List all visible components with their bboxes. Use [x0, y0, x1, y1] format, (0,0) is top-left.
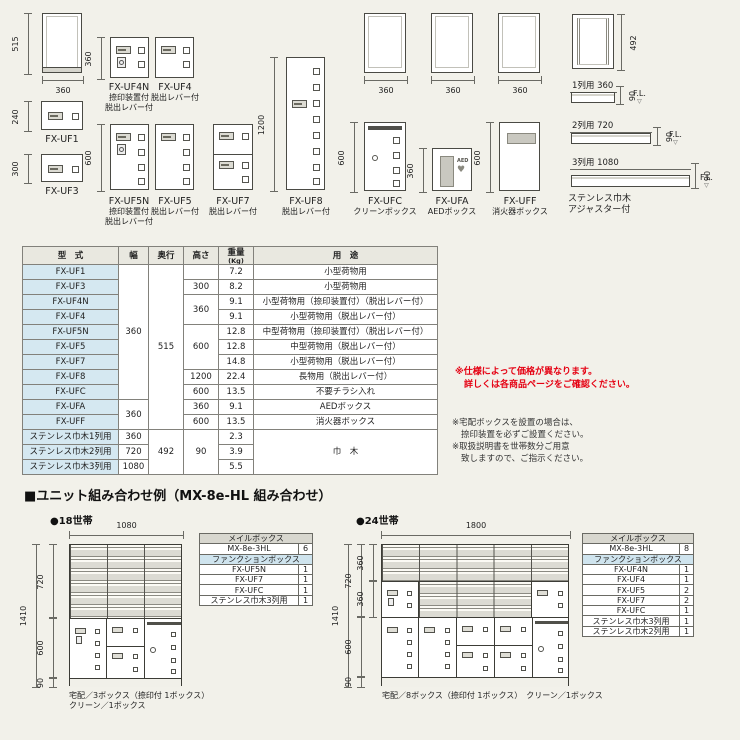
- skirting-row3-drawing: [571, 175, 690, 187]
- label-fx-uf3: FX-UF3: [30, 186, 94, 197]
- mailbox-grid: [382, 545, 568, 581]
- dim-90-right: 90: [357, 676, 365, 688]
- nameplate-icon: [424, 627, 435, 633]
- box-fx-uf7: [107, 619, 145, 678]
- lock-icon: [95, 653, 100, 658]
- nameplate-icon: [537, 590, 548, 596]
- dim-600-left: 600: [49, 617, 57, 679]
- lock-icon: [138, 149, 145, 156]
- table-row: FX-UFA3603609.1AEDボックス: [23, 400, 438, 415]
- lock-icon: [242, 162, 249, 169]
- floor-line-mark: F.L.▽: [669, 131, 682, 146]
- install-note: ※宅配ボックスを設置の場合は、 捺印装置を必ずご設置ください。 ※取扱説明書を世…: [452, 417, 589, 465]
- nameplate-icon: [292, 100, 307, 108]
- table-row: メイルボックス: [200, 534, 313, 544]
- table-row: FX-UF714.8小型荷物用（脱出レバー付）: [23, 355, 438, 370]
- nameplate-icon: [219, 132, 234, 140]
- spec-table: 型 式 幅 奥行 高さ 重量(Kg) 用 途 FX-UF13605157.2小型…: [22, 246, 438, 475]
- lock-icon: [171, 645, 176, 650]
- lock-icon: [183, 149, 190, 156]
- lock-icon: [407, 591, 412, 596]
- product-fx-uf3-drawing: [41, 154, 83, 182]
- lock-icon: [171, 658, 176, 663]
- col-height: 高さ: [184, 247, 219, 265]
- lock-icon: [313, 100, 320, 107]
- lock-icon: [72, 166, 79, 173]
- nameplate-icon: [116, 133, 131, 141]
- dim-240: 240: [24, 101, 32, 132]
- skirting-frame-drawing: [572, 14, 614, 69]
- lock-icon: [313, 116, 320, 123]
- product-fx-uf7-drawing: [213, 124, 253, 190]
- lock-icon: [171, 669, 176, 674]
- dim-600-ufc: 600: [350, 122, 358, 193]
- table-row: ファンクションボックス: [583, 554, 694, 564]
- skirting-row2-label: 2列用 720: [570, 119, 652, 133]
- skirting-base: [382, 677, 568, 687]
- table-row: FX-UF13605157.2小型荷物用: [23, 265, 438, 280]
- skirting-row1-label: 1列用 360: [570, 79, 617, 93]
- stamp-device-icon: [117, 57, 126, 68]
- stamp-device-icon: [76, 636, 82, 644]
- nameplate-icon: [462, 626, 473, 632]
- lock-icon: [313, 68, 320, 75]
- dim-360b-right: 360: [369, 580, 377, 618]
- table-row: FX-UF4N3609.1小型荷物用（捺印装置付）（脱出レバー付）: [23, 295, 438, 310]
- nameplate-icon: [112, 627, 123, 633]
- box-fx-uf5n: [70, 619, 107, 678]
- lock-icon: [95, 665, 100, 670]
- table-row: ステンレス巾木2列用1: [583, 626, 694, 636]
- lock-icon: [445, 652, 450, 657]
- dim-600-uff: 600: [486, 122, 494, 193]
- dim-90-row3: 90: [691, 163, 699, 189]
- table-row: FX-UF49.1小型荷物用（脱出レバー付）: [23, 310, 438, 325]
- lock-icon: [138, 61, 145, 68]
- lock-icon: [407, 664, 412, 669]
- lock-icon: [558, 644, 563, 649]
- compartment-divider: [495, 645, 532, 646]
- nameplate-icon: [112, 653, 123, 659]
- table-row: FX-UF52: [583, 585, 694, 595]
- table-row: ステンレス巾木3列用1: [200, 595, 313, 605]
- product-fx-ufa-drawing: AED ♥: [432, 148, 472, 191]
- product-fx-uf5-drawing: [155, 124, 194, 190]
- spec-header-row: 型 式 幅 奥行 高さ 重量(Kg) 用 途: [23, 247, 438, 265]
- box-fx-uf5: [382, 618, 419, 677]
- product-fx-uf5n-drawing: [110, 124, 149, 190]
- lock-icon: [242, 133, 249, 140]
- label-fx-uf7: FX-UF7脱出レバー付: [204, 196, 262, 217]
- function-box-row: [382, 617, 568, 677]
- dim-492: 492: [617, 14, 625, 71]
- lock-icon: [72, 113, 79, 120]
- lock-icon: [138, 134, 145, 141]
- nameplate-icon: [161, 133, 176, 141]
- lock-icon: [393, 167, 400, 174]
- lock-icon: [393, 152, 400, 159]
- lock-icon: [95, 641, 100, 646]
- table-row: FX-UF71: [200, 575, 313, 585]
- col-use: 用 途: [254, 247, 438, 265]
- box-fx-uf5: [419, 618, 457, 677]
- keyhole-icon: [538, 646, 544, 652]
- dim-1800: 1800: [381, 531, 571, 539]
- col-depth: 奥行: [149, 247, 184, 265]
- floor-line-mark: F.L.▽: [700, 174, 713, 189]
- mailbox-grid: [70, 545, 181, 618]
- table-row: FX-UF72: [583, 595, 694, 605]
- dim-600-uf5: 600: [97, 124, 105, 192]
- product-fx-uf4-drawing: [155, 37, 194, 78]
- skirting-row3-label: 3列用 1080: [570, 156, 691, 170]
- dim-90-left: 90: [49, 677, 57, 688]
- lock-icon: [521, 627, 526, 632]
- lock-icon: [133, 654, 138, 659]
- box-fx-uf7: [457, 618, 495, 677]
- flyer-slot-icon: [535, 621, 568, 624]
- label-fx-ufa: FX-UFAAEDボックス: [422, 196, 482, 217]
- col-weight: 重量(Kg): [219, 247, 254, 265]
- dim-360-frame3: 360: [498, 76, 542, 84]
- product-fx-uf4n-drawing: [110, 37, 149, 78]
- aed-door-window: [440, 156, 454, 187]
- box-fx-uf4: [532, 582, 570, 617]
- table-row: ステンレス巾木3列用1: [583, 616, 694, 626]
- lock-icon: [138, 164, 145, 171]
- table-row: FX-UF5N1: [200, 564, 313, 574]
- lock-icon: [138, 47, 145, 54]
- lock-icon: [183, 164, 190, 171]
- table-row: FX-UF33008.2小型荷物用: [23, 280, 438, 295]
- label-fx-ufc: FX-UFCクリーンボックス: [352, 196, 418, 217]
- combo-diagram-24: [381, 544, 569, 686]
- lock-icon: [483, 627, 488, 632]
- label-fx-uff: FX-UFF消火器ボックス: [487, 196, 553, 217]
- compartment-divider: [457, 645, 494, 646]
- combo-18-caption: 宅配／3ボックス（捺印付 1ボックス） クリーン／1ボックス: [69, 691, 209, 711]
- table-row: MX-8e-3HL8: [583, 544, 694, 554]
- label-fx-uf5: FX-UF5脱出レバー付: [146, 196, 204, 217]
- box-fx-ufc: [145, 619, 183, 678]
- lock-icon: [558, 591, 563, 596]
- dim-1200: 1200: [270, 57, 278, 192]
- nameplate-icon: [48, 112, 63, 120]
- nameplate-icon: [500, 652, 511, 658]
- table-row: MX-8e-3HL6: [200, 544, 313, 554]
- keyhole-icon: [150, 647, 156, 653]
- skirting-row2-drawing: [571, 133, 651, 144]
- nameplate-icon: [387, 590, 398, 596]
- lock-icon: [183, 47, 190, 54]
- box-fx-ufc: [533, 618, 570, 677]
- dim-300: 300: [24, 154, 32, 184]
- col-width: 幅: [119, 247, 149, 265]
- table-row: FX-UF4N1: [583, 564, 694, 574]
- lock-icon: [242, 176, 249, 183]
- lock-icon: [407, 652, 412, 657]
- nameplate-icon: [219, 161, 234, 169]
- lock-icon: [171, 632, 176, 637]
- lock-icon: [313, 148, 320, 155]
- dim-1410-left: 1410: [32, 544, 40, 688]
- table-row: FX-UFC1: [200, 585, 313, 595]
- dim-600-right: 600: [357, 616, 365, 678]
- table-row: ファンクションボックス: [200, 554, 313, 564]
- table-row: FX-UF512.8中型荷物用（脱出レバー付）: [23, 340, 438, 355]
- lock-icon: [407, 603, 412, 608]
- floor-line-mark: F.L.▽: [633, 90, 646, 105]
- table-row: FX-UF41: [583, 575, 694, 585]
- dim-360-ufa: 360: [419, 148, 427, 193]
- lock-icon: [407, 640, 412, 645]
- price-note: ※仕様によって価格が異なります。 詳しくは各商品ページをご確認ください。: [455, 366, 635, 392]
- open-frame-drawing: [364, 13, 406, 73]
- nameplate-icon: [387, 627, 398, 633]
- mailbox-grid: [419, 582, 532, 617]
- box-fx-uf7: [495, 618, 533, 677]
- lock-icon: [95, 629, 100, 634]
- dim-360-cabinet: 360: [42, 76, 84, 84]
- mixed-row: [382, 581, 568, 617]
- table-row: ステンレス巾木1列用360492902.3巾 木: [23, 430, 438, 445]
- open-cabinet-drawing: [42, 13, 82, 73]
- dim-515: 515: [24, 13, 32, 75]
- lock-icon: [445, 628, 450, 633]
- table-row: FX-UF8120022.4長物用（脱出レバー付）: [23, 370, 438, 385]
- lock-icon: [558, 603, 563, 608]
- lock-icon: [445, 664, 450, 669]
- lock-icon: [407, 628, 412, 633]
- dim-1080: 1080: [69, 531, 184, 539]
- compartment-divider: [213, 154, 253, 155]
- lock-icon: [133, 667, 138, 672]
- combo-24-caption: 宅配／8ボックス（捺印付 1ボックス） クリーン／1ボックス: [382, 691, 603, 701]
- lock-icon: [313, 164, 320, 171]
- nameplate-icon: [48, 165, 63, 173]
- compartment-divider: [107, 646, 144, 647]
- extinguisher-window: [507, 133, 536, 144]
- dim-360-frame1: 360: [364, 76, 408, 84]
- col-model: 型 式: [23, 247, 119, 265]
- lock-icon: [445, 640, 450, 645]
- lock-icon: [313, 84, 320, 91]
- catalog-page: 515 360 240 FX-UF1 300 FX-UF3 360 FX-UF4…: [0, 0, 740, 740]
- product-fx-ufc-drawing: [364, 122, 406, 191]
- dim-90-row1: 90: [616, 86, 624, 105]
- lock-icon: [483, 653, 488, 658]
- dim-360a-right: 360: [369, 544, 377, 582]
- lock-icon: [521, 666, 526, 671]
- dim-360-frame2: 360: [431, 76, 475, 84]
- aed-heart-icon: ♥: [457, 166, 465, 175]
- label-fx-uf1: FX-UF1: [30, 134, 94, 145]
- table-row: FX-UFC60013.5不要チラシ入れ: [23, 385, 438, 400]
- combo-section-title: ■ユニット組み合わせ例（MX-8e-HL 組み合わせ）: [24, 485, 332, 504]
- dim-360-uf4: 360: [97, 37, 105, 80]
- skirting-base: [70, 678, 181, 687]
- flyer-slot-icon: [368, 126, 402, 130]
- lock-icon: [183, 61, 190, 68]
- product-fx-uff-drawing: [499, 122, 540, 191]
- product-fx-uf1-drawing: [41, 101, 83, 130]
- open-frame-drawing: [431, 13, 473, 73]
- lock-icon: [183, 134, 190, 141]
- box-fx-uf4n: [382, 582, 419, 617]
- lock-icon: [393, 137, 400, 144]
- aed-logo-text: AED: [457, 159, 468, 164]
- lock-icon: [133, 628, 138, 633]
- table-row: FX-UFF60013.5消火器ボックス: [23, 415, 438, 430]
- combo-diagram-18: [69, 544, 182, 686]
- nameplate-icon: [161, 46, 176, 54]
- parts-table-24: メイルボックス MX-8e-3HL8 ファンクションボックス FX-UF4N1 …: [582, 533, 693, 637]
- table-row: メイルボックス: [583, 534, 694, 544]
- table-row: FX-UFC1: [583, 606, 694, 616]
- lock-icon: [558, 657, 563, 662]
- stamp-device-icon: [388, 598, 394, 606]
- nameplate-icon: [75, 628, 86, 634]
- lock-icon: [313, 178, 320, 185]
- skirting-row1-drawing: [571, 92, 615, 103]
- label-skirting: ステンレス巾木アジャスター付: [568, 194, 631, 215]
- stamp-device-icon: [117, 144, 126, 155]
- keyhole-icon: [372, 155, 378, 161]
- product-fx-uf8-drawing: [286, 57, 325, 190]
- table-row: FX-UF5N60012.8中型荷物用（捺印装置付）（脱出レバー付）: [23, 325, 438, 340]
- label-fx-uf8: FX-UF8脱出レバー付: [277, 196, 335, 217]
- lock-icon: [183, 178, 190, 185]
- open-frame-drawing: [498, 13, 540, 73]
- label-fx-uf4: FX-UF4脱出レバー付: [146, 82, 204, 103]
- dim-720-left: 720: [49, 544, 57, 619]
- lock-icon: [393, 180, 400, 187]
- lock-icon: [138, 178, 145, 185]
- dim-90-row2: 90: [653, 127, 661, 146]
- flyer-slot-icon: [147, 622, 181, 625]
- function-box-row: [70, 618, 181, 678]
- lock-icon: [313, 132, 320, 139]
- nameplate-icon: [500, 626, 511, 632]
- lock-icon: [521, 653, 526, 658]
- lock-icon: [558, 631, 563, 636]
- lock-icon: [558, 668, 563, 673]
- nameplate-icon: [116, 46, 131, 54]
- nameplate-icon: [462, 652, 473, 658]
- lock-icon: [483, 666, 488, 671]
- parts-table-18: メイルボックス MX-8e-3HL6 ファンクションボックス FX-UF5N1 …: [199, 533, 312, 606]
